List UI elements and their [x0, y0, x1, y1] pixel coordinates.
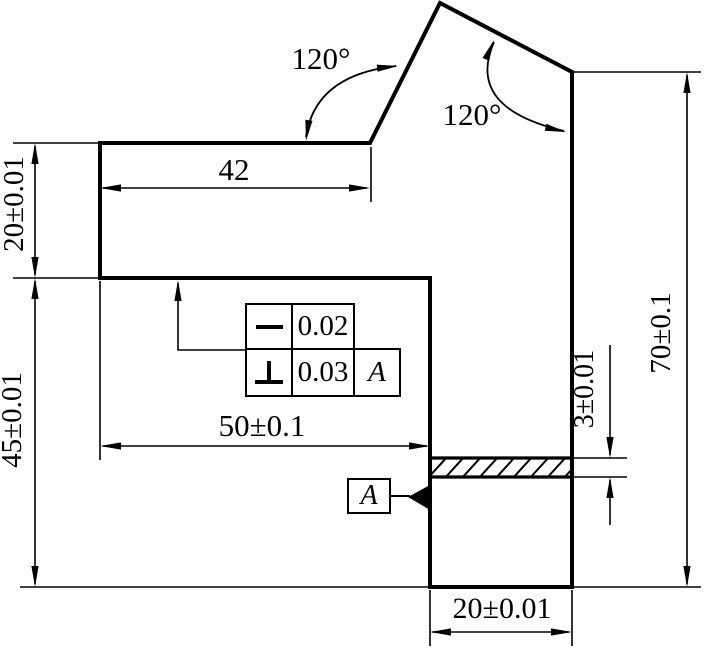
datum-label: A	[360, 480, 377, 512]
dim-label-50: 50±0.1	[197, 408, 327, 442]
straightness-icon	[256, 325, 283, 329]
dim-label-45-left: 45±0.01	[0, 355, 28, 485]
part-outline	[100, 3, 572, 587]
angle-arc-left	[306, 66, 396, 137]
perpendicularity-datum-cell: A	[353, 348, 401, 397]
angle-label-right: 120°	[434, 98, 510, 131]
perpendicularity-datum-ref: A	[368, 356, 386, 389]
perpendicularity-icon	[255, 361, 283, 384]
dim-label-20-left: 20±0.01	[0, 139, 30, 269]
perpendicularity-tolerance-cell: 0.03	[291, 348, 355, 397]
perpendicularity-tolerance-value: 0.03	[298, 356, 349, 389]
fcf-leader-line	[178, 283, 245, 350]
angle-label-left: 120°	[283, 42, 359, 75]
dim-label-70-right: 70±0.1	[645, 274, 677, 392]
engineering-drawing: 120° 120° 42 20±0.01 45±0.01 50±0.1 3±0.…	[0, 0, 708, 651]
dim-label-20-bottom: 20±0.01	[437, 592, 567, 625]
slot-edge-extensions	[572, 458, 627, 477]
datum-label-box: A	[347, 478, 391, 514]
perpendicularity-symbol-cell	[245, 348, 293, 397]
fcf-straightness-frame: 0.02	[245, 303, 355, 350]
dim-label-42: 42	[200, 153, 268, 186]
straightness-tolerance-cell: 0.02	[291, 303, 355, 350]
datum-triangle-icon	[408, 485, 430, 510]
straightness-tolerance-value: 0.02	[298, 310, 349, 343]
dim-label-3-slot: 3±0.01	[569, 333, 601, 445]
straightness-symbol-cell	[245, 303, 293, 350]
fcf-perpendicularity-frame: 0.03 A	[245, 348, 401, 397]
